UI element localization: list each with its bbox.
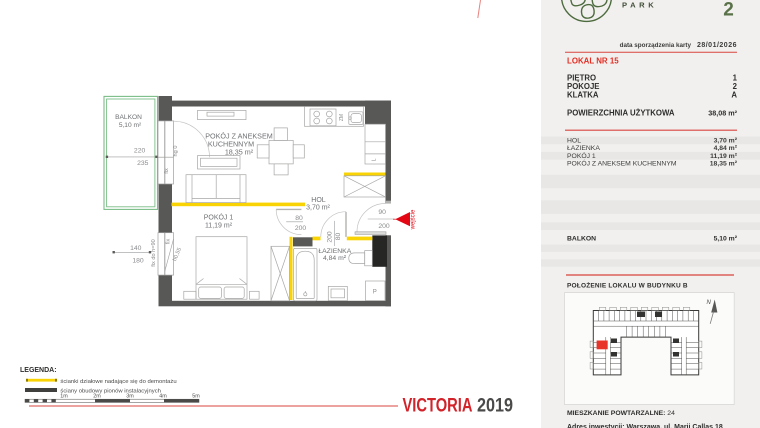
svg-text:LEGENDA:: LEGENDA: [20,367,57,374]
svg-text:ściany obudowy pionów instalac: ściany obudowy pionów instalacyjnych [60,388,161,394]
svg-text:wejście: wejście [411,209,417,230]
svg-text:LOKAL NR 15: LOKAL NR 15 [567,57,619,66]
svg-text:PARK: PARK [622,1,657,10]
svg-text:POŁOŻENIE LOKALU W BUDYNKU B: POŁOŻENIE LOKALU W BUDYNKU B [567,282,688,290]
svg-text:POKÓJ Z ANEKSEM KUCHENNYM: POKÓJ Z ANEKSEM KUCHENNYM [567,158,677,167]
svg-text:ŁAZIENKA: ŁAZIENKA [318,248,351,255]
svg-text:220: 220 [134,148,146,155]
svg-text:11,19 m²: 11,19 m² [205,222,233,229]
svg-text:POKÓJ 1: POKÓJ 1 [567,151,596,160]
svg-text:5,10 m²: 5,10 m² [119,122,142,129]
svg-text:2019: 2019 [477,396,513,417]
svg-text:P: P [373,290,377,296]
svg-text:ZM: ZM [339,114,345,121]
svg-text:POWIERZCHNIA UŻYTKOWA: POWIERZCHNIA UŻYTKOWA [567,108,675,117]
svg-text:KLATKA: KLATKA [567,90,599,99]
svg-text:11,19 m²: 11,19 m² [710,153,738,160]
svg-text:4,84 m²: 4,84 m² [714,145,738,152]
svg-text:28/01/2026: 28/01/2026 [697,42,737,49]
svg-text:N: N [707,300,712,306]
svg-text:fix: fix [164,168,170,174]
svg-text:data sporządzenia karty: data sporządzenia karty [620,42,692,49]
svg-text:4m: 4m [159,394,167,400]
svg-text:5m: 5m [192,394,200,400]
svg-text:MIESZKANIE POWTARZALNE: 24: MIESZKANIE POWTARZALNE: 24 [567,410,675,417]
svg-text:ŁAZIENKA: ŁAZIENKA [567,145,600,152]
svg-text:90: 90 [378,209,386,216]
svg-text:140: 140 [130,245,142,252]
svg-text:HOL: HOL [311,197,326,204]
svg-text:180: 180 [132,258,144,265]
svg-text:5,10 m²: 5,10 m² [714,235,738,242]
svg-text:200: 200 [327,231,334,243]
svg-text:VICTORIA: VICTORIA [403,396,473,417]
svg-text:L: L [372,158,378,161]
svg-text:Adres inwestycji: Warszawa, ul: Adres inwestycji: Warszawa, ul. Marii Ca… [567,424,723,428]
svg-text:fix do h=90: fix do h=90 [151,239,157,267]
svg-text:1m: 1m [60,394,68,400]
svg-text:38,08 m²: 38,08 m² [708,108,737,117]
svg-text:A: A [731,90,737,99]
svg-text:BALKON: BALKON [567,235,596,242]
svg-text:2: 2 [723,0,734,21]
svg-text:80: 80 [335,233,342,241]
svg-text:POKÓJ 1: POKÓJ 1 [204,212,234,221]
svg-text:3,70 m²: 3,70 m² [306,205,330,212]
svg-text:ścianki działowe nadające się: ścianki działowe nadające się do demonta… [60,379,176,385]
svg-text:80: 80 [295,215,303,222]
svg-text:3,70 m²: 3,70 m² [714,138,738,145]
svg-text:18,35 m²: 18,35 m² [225,147,254,156]
svg-text:hg 0: hg 0 [173,146,179,157]
svg-text:HOL: HOL [567,138,581,145]
svg-text:18,35 m²: 18,35 m² [710,160,738,167]
svg-text:BALKON: BALKON [115,114,142,121]
svg-text:fix: fix [166,239,172,245]
svg-text:3m: 3m [126,394,134,400]
svg-text:200: 200 [295,225,307,232]
svg-text:4,84 m²: 4,84 m² [323,255,347,262]
svg-text:2m: 2m [93,394,101,400]
svg-text:200: 200 [378,223,390,230]
svg-text:235: 235 [137,160,149,167]
